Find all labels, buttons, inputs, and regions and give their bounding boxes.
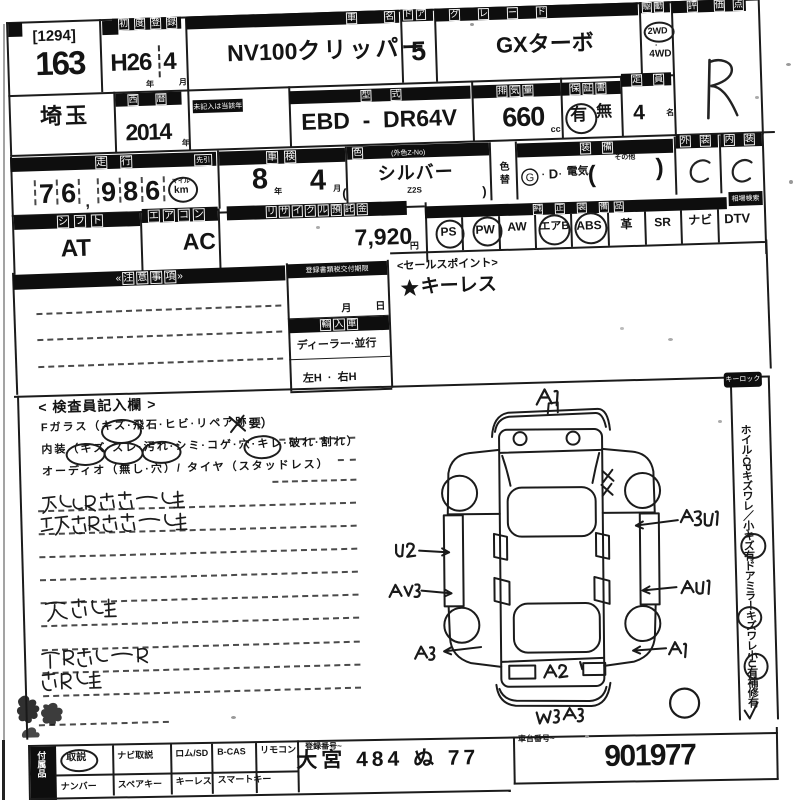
svg-text:G: G xyxy=(525,172,534,184)
